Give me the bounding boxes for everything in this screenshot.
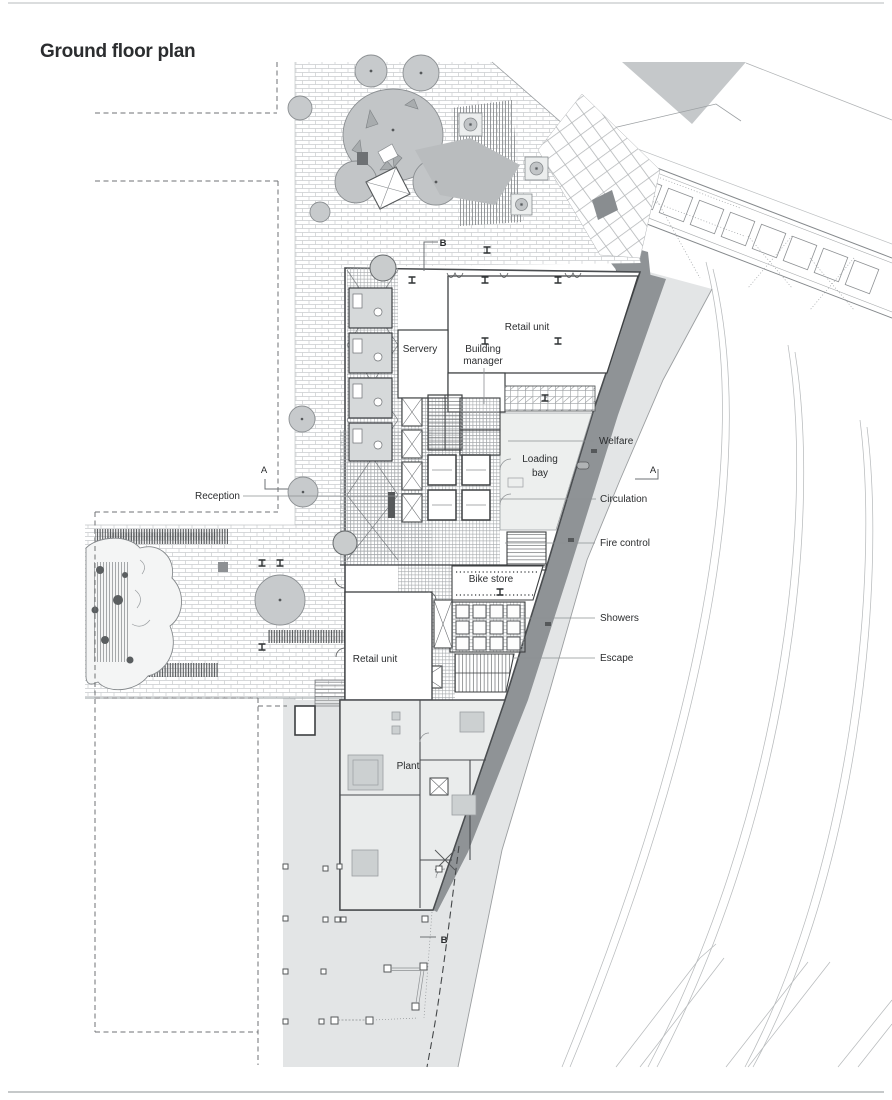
bench-band <box>268 630 352 643</box>
ground-floor-plan-page: Ground floor plan Retail unit Servery Bu… <box>0 0 892 1100</box>
label-welfare: Welfare <box>599 436 634 447</box>
revolving-door <box>333 531 357 555</box>
label-plant: Plant <box>397 761 420 772</box>
fire-stair <box>507 532 546 570</box>
label-servery: Servery <box>403 344 437 355</box>
revolving-door <box>370 255 396 281</box>
label-loading-bay-2: bay <box>532 468 548 479</box>
entrance-lobby <box>295 706 315 735</box>
page-title: Ground floor plan <box>40 41 195 62</box>
label-showers: Showers <box>600 613 639 624</box>
section-marker-b-bottom: B <box>441 935 448 946</box>
section-marker-b-top: B <box>440 238 447 249</box>
context-triangle <box>622 62 746 124</box>
welfare-room <box>505 386 595 411</box>
label-fire-control: Fire control <box>600 538 650 549</box>
label-bike-store: Bike store <box>469 574 514 585</box>
label-reception: Reception <box>195 491 240 502</box>
servery-room <box>398 330 448 398</box>
section-marker-a-left: A <box>261 465 268 476</box>
label-building-manager-1: Building <box>465 344 501 355</box>
label-escape: Escape <box>600 653 634 664</box>
retail-unit-2 <box>345 592 432 700</box>
label-circulation: Circulation <box>600 494 647 505</box>
floor-plan-drawing: Ground floor plan Retail unit Servery Bu… <box>0 0 892 1100</box>
label-loading-bay-1: Loading <box>522 454 558 465</box>
label-retail-unit-top: Retail unit <box>505 322 550 333</box>
label-retail-unit-lower: Retail unit <box>353 654 398 665</box>
label-building-manager-2: manager <box>463 356 503 367</box>
section-marker-a-right: A <box>650 465 657 476</box>
